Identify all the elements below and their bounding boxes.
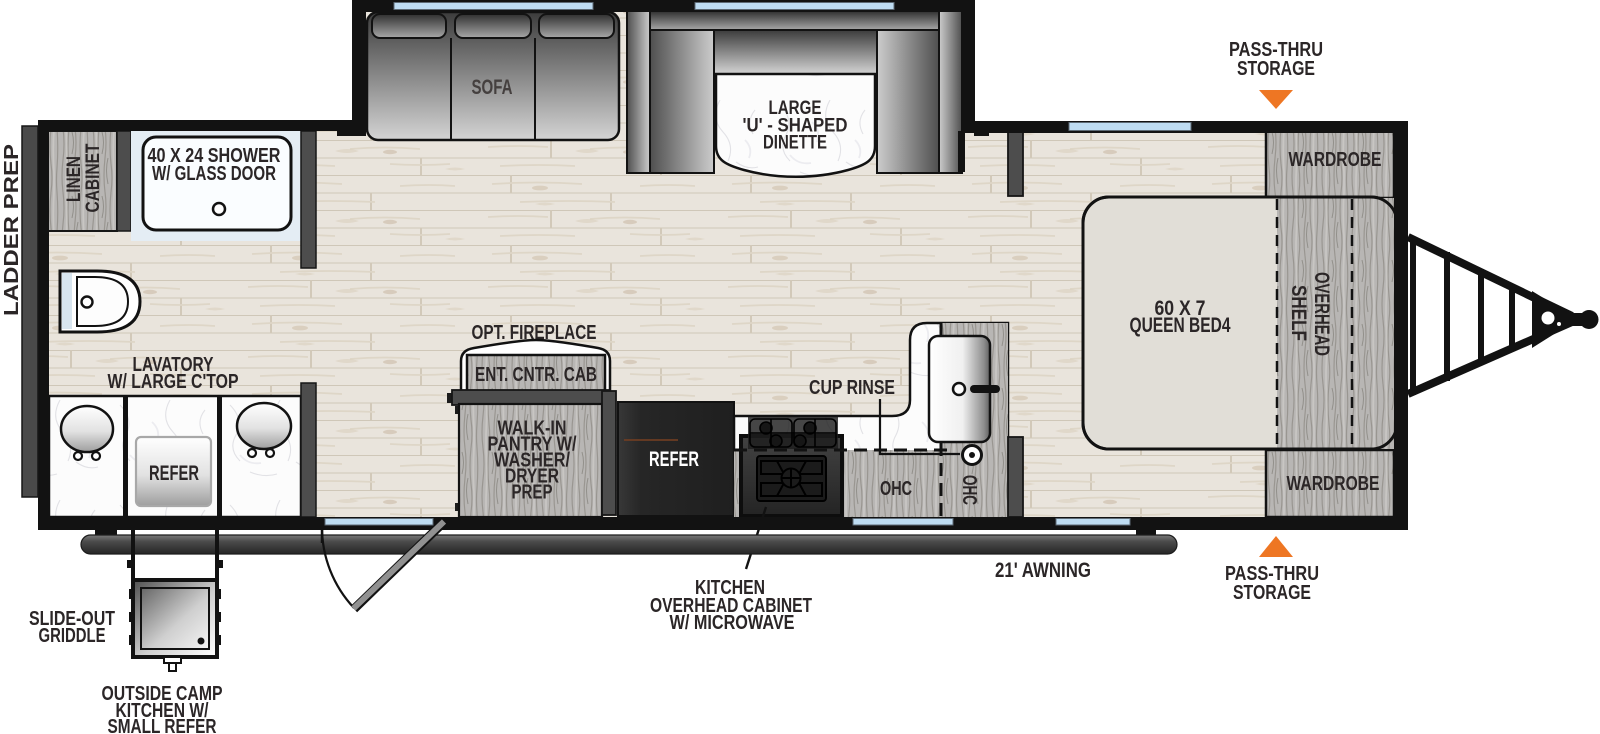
svg-text:REFER: REFER xyxy=(149,462,199,485)
svg-text:SMALL REFER: SMALL REFER xyxy=(108,716,217,734)
svg-text:21' AWNING: 21' AWNING xyxy=(995,559,1091,582)
svg-text:WARDROBE: WARDROBE xyxy=(1289,149,1382,171)
svg-text:LADDER PREP: LADDER PREP xyxy=(1,144,23,316)
svg-text:GRIDDLE: GRIDDLE xyxy=(39,625,106,647)
svg-text:QUEEN BED4: QUEEN BED4 xyxy=(1130,314,1231,337)
svg-text:CABINET: CABINET xyxy=(83,143,104,212)
svg-text:STORAGE: STORAGE xyxy=(1233,582,1311,604)
svg-text:W/ GLASS DOOR: W/ GLASS DOOR xyxy=(152,163,276,185)
svg-text:OHC: OHC xyxy=(958,475,980,505)
svg-text:OHC: OHC xyxy=(880,478,912,500)
svg-text:ENT. CNTR. CAB: ENT. CNTR. CAB xyxy=(475,364,597,386)
svg-text:W/ MICROWAVE: W/ MICROWAVE xyxy=(670,612,795,634)
svg-text:SHELF: SHELF xyxy=(1287,285,1310,341)
svg-text:OVERHEAD: OVERHEAD xyxy=(1310,272,1333,356)
svg-text:REFER: REFER xyxy=(649,448,699,471)
svg-text:PREP: PREP xyxy=(512,481,553,503)
svg-text:LINEN: LINEN xyxy=(64,156,85,202)
svg-text:DINETTE: DINETTE xyxy=(763,133,827,154)
svg-text:WARDROBE: WARDROBE xyxy=(1287,473,1380,495)
svg-text:W/ LARGE C'TOP: W/ LARGE C'TOP xyxy=(108,371,239,393)
svg-text:SOFA: SOFA xyxy=(472,76,513,99)
svg-text:STORAGE: STORAGE xyxy=(1237,58,1315,80)
svg-text:CUP RINSE: CUP RINSE xyxy=(809,377,895,399)
